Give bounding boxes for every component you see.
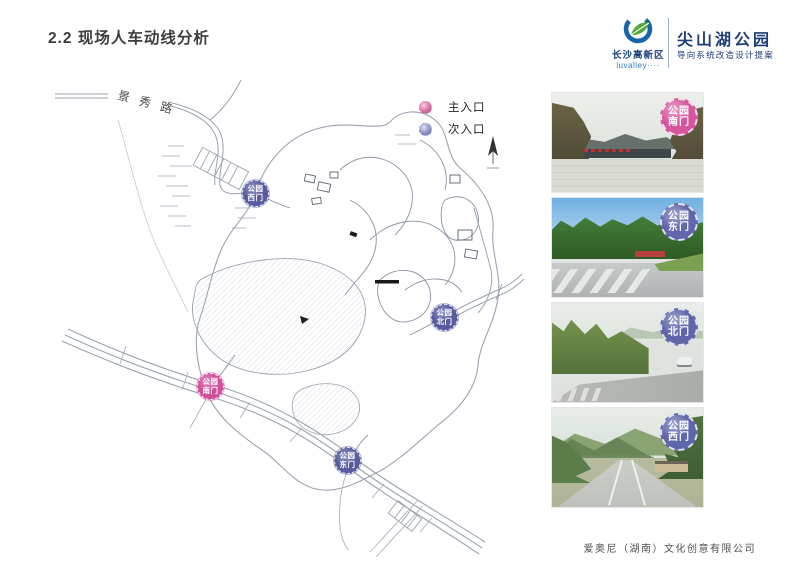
photo-park-east-gate: 公园 东门 [551, 197, 704, 298]
map-marker-north-gate: 公园 北门 [431, 304, 458, 331]
page-title: 2.2 现场人车动线分析 [48, 26, 210, 48]
org-name: 长沙高新区 [612, 47, 664, 61]
site-plan-linework [50, 80, 550, 558]
red-shrubs [635, 251, 665, 257]
crosswalk [556, 388, 606, 401]
site-plan-map [50, 80, 550, 558]
crosswalk [551, 269, 658, 293]
photo-park-north-gate: 公园 北门 [551, 302, 704, 403]
white-car [677, 357, 692, 365]
photo-badge-north-gate: 公园 北门 [660, 308, 698, 346]
org-logo-block: 长沙高新区 luvalley···· [612, 12, 664, 74]
annotation-dashes [158, 135, 416, 228]
lake-area [192, 259, 365, 375]
gate-monument [584, 149, 672, 158]
monument-red-lettering [584, 149, 633, 152]
company-footer: 爱奥尼（湖南）文化创意有限公司 [584, 540, 757, 555]
photo-park-west-gate: 公园 西门 [551, 407, 704, 508]
slide-canvas: 2.2 现场人车动线分析 长沙高新区 luvalley···· 尖山湖公园 导向… [0, 0, 800, 565]
photo-badge-south-gate: 公园 南门 [660, 98, 698, 136]
map-marker-east-gate: 公园 东门 [334, 447, 361, 474]
white-wall [552, 372, 615, 386]
map-marker-west-gate: 公园 西门 [242, 180, 269, 207]
project-name: 尖山湖公园 [677, 26, 772, 50]
header-divider [668, 18, 669, 68]
photo-park-south-gate: 公园 南门 [551, 92, 704, 193]
plaza-paving [552, 159, 703, 192]
luvalley-logo-icon [621, 12, 655, 46]
small-building [655, 461, 688, 472]
org-tagline: luvalley···· [612, 61, 664, 70]
photo-badge-west-gate: 公园 西门 [660, 413, 698, 451]
map-marker-south-gate: 公园 南门 [197, 373, 224, 400]
photo-badge-east-gate: 公园 东门 [660, 203, 698, 241]
north-arrow-icon [487, 136, 499, 168]
project-subtitle: 导向系统改造设计提案 [677, 49, 774, 61]
